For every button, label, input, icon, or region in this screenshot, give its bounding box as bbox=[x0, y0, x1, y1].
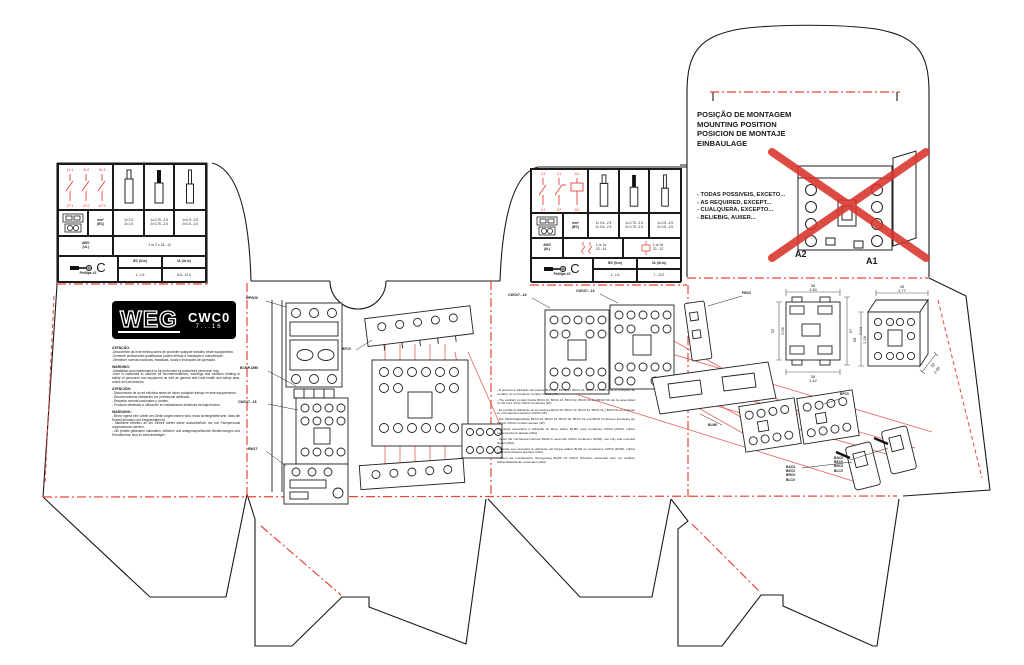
rw17-overload-relay-drawing bbox=[284, 464, 348, 504]
instruction-de-2: - Wenn die mechanische Verriegelung BLM0… bbox=[497, 457, 635, 464]
part-label-cwc0-left: CWC07...16 bbox=[508, 293, 526, 297]
instruction-pt-2: - Quando necessária a utilização do bloc… bbox=[497, 428, 635, 435]
mm2-value-3: 1x 0.5...2.5 2x 0.5...2.5 bbox=[649, 213, 681, 238]
accessory-list-2: BAC0 BEC0 BRC0 BLC0 bbox=[834, 456, 843, 473]
svg-text:1.77: 1.77 bbox=[898, 288, 907, 293]
cwc0-contactor-stack-drawing bbox=[294, 389, 348, 464]
part-label-pbc0: PBC0 bbox=[742, 291, 751, 295]
clamp-terminal-icon bbox=[58, 210, 88, 236]
terminal-label-a2: A2 bbox=[795, 249, 807, 259]
torque-iec-value: 1...1.5 bbox=[593, 269, 637, 283]
svg-text:1L1: 1L1 bbox=[66, 167, 73, 172]
warning-body-en: -Installation and maintenance to be perf… bbox=[112, 370, 240, 386]
part-label-cwc0-stack: CWC07...16 bbox=[238, 400, 256, 404]
terminal-label-a1: A1 bbox=[866, 256, 878, 266]
bfc0-top-block-drawing bbox=[365, 306, 474, 353]
mounting-position-title: POSIÇÃO DE MONTAGEM MOUNTING POSITION PO… bbox=[697, 110, 877, 148]
svg-text:4T2: 4T2 bbox=[82, 203, 90, 208]
clamp-terminal-icon bbox=[531, 213, 563, 238]
aux-circuit-diagram: 1321A1 1422A2 bbox=[531, 169, 588, 213]
svg-text:A1: A1 bbox=[574, 171, 580, 176]
torque-iec-value: 1...1.5 bbox=[118, 268, 162, 283]
brand-block: WEG CWC0 7...16 bbox=[112, 301, 236, 339]
svg-text:2.05: 2.05 bbox=[780, 326, 785, 335]
instruction-en-2: - When the mechanical interlock BLM0 is … bbox=[497, 438, 635, 445]
wrench-c-icon: C bbox=[570, 267, 579, 271]
screw-tool-cell: C Phillips #2 bbox=[58, 256, 118, 283]
svg-text:13: 13 bbox=[540, 171, 545, 176]
contact-symbol-icon bbox=[580, 241, 594, 255]
warning-body-de: - Bevor irgend eine Arbeit am Gerät vorg… bbox=[112, 415, 240, 438]
warning-body-pt: -Desconecte da rede elétrica antes de pr… bbox=[112, 351, 240, 363]
awg-row-label: AWG(UL) bbox=[58, 236, 113, 256]
torque-ul-value: 7...13.3 bbox=[637, 269, 681, 283]
torque-ul-header: UL (lb.in) bbox=[637, 258, 681, 269]
dimension-side-view-drawing bbox=[786, 297, 840, 365]
svg-text:5L3: 5L3 bbox=[98, 167, 105, 172]
instruction-pt-1: - É possível a utilização dos blocos BFC… bbox=[497, 389, 635, 396]
svg-text:2T1: 2T1 bbox=[66, 203, 74, 208]
svg-text:1.50: 1.50 bbox=[809, 287, 818, 292]
model-name: CWC0 bbox=[188, 311, 230, 324]
part-label-bfc0-right: BFC0 bbox=[840, 392, 849, 396]
svg-text:A2: A2 bbox=[574, 207, 580, 212]
torque-ul-header: UL (lb.in) bbox=[162, 256, 206, 268]
bare-wire-icon bbox=[649, 169, 681, 213]
mm2-value-3: 1x 0.5...2.5 2x 0.5...2.5 bbox=[174, 210, 206, 236]
instruction-es-1: - Es posible la utilización de los bloqu… bbox=[497, 409, 635, 416]
instruction-es-2: - Cuando sea necesaria la utilización de… bbox=[497, 448, 635, 455]
instruction-en-1: - The auxiliary contact blocks BFC0 40, … bbox=[497, 399, 635, 406]
terminal-spec-table-aux: 1321A1 1422A2 mm²(IEC) 1x 0.5...2.5 2x 0… bbox=[530, 168, 682, 282]
coil-symbol-icon bbox=[641, 241, 651, 255]
power-circuit-diagram: 1L13L25L3 2T14T26T3 bbox=[58, 164, 113, 210]
bottom-block-drawing bbox=[359, 458, 464, 489]
part-label-connector: BCMP-DM0 bbox=[240, 366, 258, 370]
svg-text:2.28: 2.28 bbox=[862, 335, 867, 344]
instruction-de-1: - Die Hilfsschalterblöcke BFC0 40, BFC0 … bbox=[497, 418, 635, 425]
part-label-mpw16: MPW16 bbox=[246, 296, 258, 300]
mm2-value-1: 1x 0.5...2.5 2x 0.5...2.5 bbox=[588, 213, 619, 238]
warning-body-es: - Desconectar de la red eléctrica antes … bbox=[112, 392, 240, 408]
ferrule-icon bbox=[113, 164, 144, 210]
svg-text:2.24: 2.24 bbox=[858, 326, 863, 335]
part-label-rw17: RW17 bbox=[248, 447, 257, 451]
part-label-cwc0-right: CWC07...16 bbox=[576, 289, 594, 293]
mm2-row-label: mm²(IEC) bbox=[88, 210, 114, 236]
packaging-dieline-sheet: 381.50 52 2.05 57 2.24 361.42 451.77 58 … bbox=[0, 0, 1024, 665]
svg-text:6T3: 6T3 bbox=[98, 203, 106, 208]
torque-ul-value: 8.8...13.3 bbox=[162, 268, 206, 283]
part-label-blm0: BLM0 bbox=[708, 423, 717, 427]
svg-text:22: 22 bbox=[556, 207, 561, 212]
awg-value-coil: 1 or 2x 22...12 bbox=[623, 238, 681, 258]
insulated-ferrule-icon bbox=[619, 169, 650, 213]
svg-text:14: 14 bbox=[540, 207, 545, 212]
awg-value: 1 or 2 x 18...12 bbox=[113, 236, 206, 256]
svg-text:21: 21 bbox=[556, 171, 561, 176]
wrench-c-icon: C bbox=[96, 266, 105, 270]
awg-value-contacts: 1 or 2x 22...14 bbox=[563, 238, 623, 258]
insulated-ferrule-icon bbox=[144, 164, 175, 210]
bfc0-side-block-drawing bbox=[462, 424, 502, 458]
svg-text:1.42: 1.42 bbox=[809, 378, 818, 383]
svg-text:52: 52 bbox=[770, 328, 775, 333]
mm2-value-2: 1x 0.75...2.5 2x 0.75...2.5 bbox=[144, 210, 175, 236]
dimension-front-view-drawing bbox=[868, 300, 928, 366]
svg-text:57: 57 bbox=[848, 328, 853, 333]
torque-iec-header: IEC (N.m) bbox=[593, 258, 637, 269]
part-label-bfc0-top: BFC0 bbox=[342, 347, 351, 351]
assembly-instructions: - É possível a utilização dos blocos BFC… bbox=[497, 389, 635, 467]
ferrule-icon bbox=[588, 169, 619, 213]
screw-type: Phillips #2 bbox=[80, 272, 97, 276]
weg-logo: WEG bbox=[118, 307, 180, 333]
bare-wire-icon bbox=[174, 164, 206, 210]
mounting-position-bullets: - TODAS POSSIVEIS, EXCETO... - AS REQUIR… bbox=[697, 192, 887, 222]
torque-iec-header: IEC (N.m) bbox=[118, 256, 162, 268]
cwc0-contactor-exploded-drawing bbox=[372, 360, 468, 446]
model-block: CWC0 7...16 bbox=[188, 311, 230, 330]
screw-type: Phillips #2 bbox=[554, 273, 571, 277]
svg-text:58: 58 bbox=[852, 337, 857, 342]
mm2-value-2: 1x 0.75...2.5 2x 0.75...2.5 bbox=[619, 213, 650, 238]
svg-text:3L2: 3L2 bbox=[82, 167, 89, 172]
screw-tool-cell: C Phillips #2 bbox=[531, 258, 593, 283]
mm2-row-label: mm²(IEC) bbox=[563, 213, 589, 238]
accessory-list-1: BAC0 BEC0 BRC0 BLC0 bbox=[786, 465, 795, 482]
terminal-spec-table-power: 1L13L25L3 2T14T26T3 mm²(IEC) 1x 2.5 2x 1… bbox=[57, 163, 207, 282]
pbc0-side-module-drawing bbox=[684, 301, 712, 361]
awg-row-label: AWG(UL) bbox=[531, 238, 563, 258]
mm2-value-1: 1x 2.5 2x 1.5 bbox=[113, 210, 144, 236]
multilingual-warnings: ATENÇÃO: -Desconecte da rede elétrica an… bbox=[112, 344, 240, 438]
